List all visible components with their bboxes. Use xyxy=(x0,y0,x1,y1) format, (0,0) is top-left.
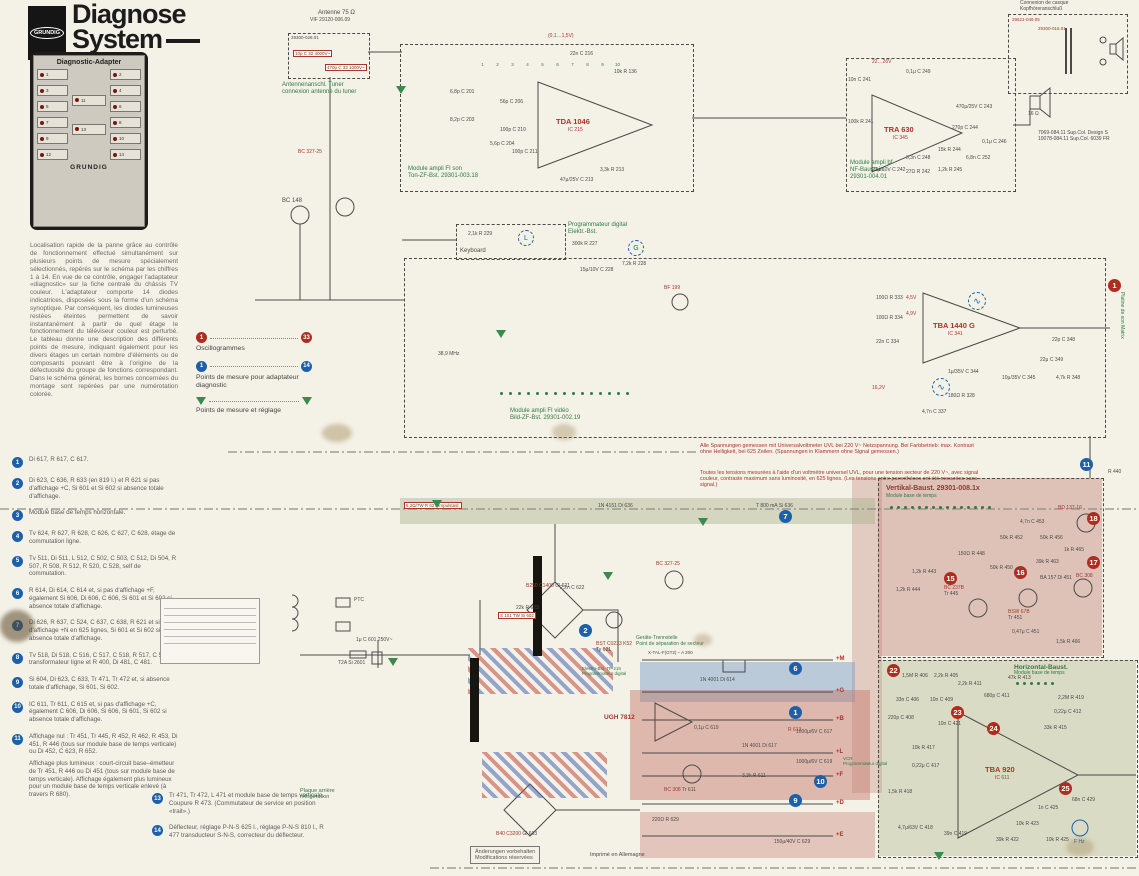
legend-osc-label: Oscillogrammes xyxy=(196,345,312,353)
part-label: 8,2p C 203 xyxy=(450,118,474,124)
part-label: 3,3k R 213 xyxy=(600,168,624,174)
adapter-point-marker: 6 xyxy=(789,662,802,675)
part-label: 4,7n C 337 xyxy=(922,410,946,416)
adapter-point-marker: 9 xyxy=(789,794,802,807)
voltage-label: 4,9V xyxy=(906,312,916,318)
adjust-point-marker xyxy=(698,518,708,526)
part-label: 1,5M R 406 xyxy=(902,674,928,680)
rail-label: +M xyxy=(836,656,845,663)
part-label: 1n C 425 xyxy=(1038,806,1058,812)
adapter-point-marker: 2 xyxy=(579,624,592,637)
headphone-caption: 7069-084.11 Sup.Col. Design S 10078-084.… xyxy=(1038,131,1110,143)
led-icon xyxy=(113,137,117,141)
part-label: 15k R 244 xyxy=(938,148,961,154)
osc-marker-sample: 1 xyxy=(196,332,207,343)
list-item: 9Si 604, Di 623, C 633, Tr 471, Tr 472 e… xyxy=(12,676,178,692)
part-label: 1k R 465 xyxy=(1064,548,1084,554)
part-label: 33n C 406 xyxy=(896,698,919,704)
adapter-led: 6 xyxy=(110,101,141,112)
adapter-marker-sample: 14 xyxy=(301,361,312,372)
adapter-led: 12 xyxy=(37,149,68,160)
ptc-label: PTC xyxy=(354,598,364,604)
adapter-point-marker: 7 xyxy=(779,510,792,523)
ic-tra630-ref: IC 345 xyxy=(893,136,908,142)
part-label: 15μ/10V C 228 xyxy=(580,268,613,274)
adapter-led: 2 xyxy=(110,69,141,80)
triangle-marker-sample xyxy=(196,397,206,405)
adapter-led: 10 xyxy=(110,133,141,144)
rail-label: +F xyxy=(836,772,843,779)
part-label: 50k R 452 xyxy=(1000,536,1023,542)
adapter-led: 13 xyxy=(72,124,106,135)
antenna-box: 29300-028.01 10p C 32 4000V~ 470p C 33 1… xyxy=(288,33,370,79)
adapter-led: 8 xyxy=(110,117,141,128)
led-icon xyxy=(40,89,44,93)
led-icon xyxy=(40,153,44,157)
part-label: 1μ/35V C 344 xyxy=(948,370,979,376)
part-label: 100p C 210 xyxy=(500,128,526,134)
rail-label: +L xyxy=(836,749,843,756)
cap-symbol xyxy=(372,652,382,664)
part-label: 100k R 241 xyxy=(848,120,874,126)
c629-label: 150μ/40V C 629 xyxy=(774,840,810,846)
list-item: 11 Affichage nul : Tr 451, Tr 445, R 452… xyxy=(12,733,178,799)
transistor-bf199-label: BF 199 xyxy=(664,286,680,292)
adapter-point-marker: 11 xyxy=(1080,458,1093,471)
test-point-row xyxy=(1016,682,1054,685)
part-label: 1,5k R 466 xyxy=(1056,640,1080,646)
part-label: 2,2k R 411 xyxy=(958,682,982,688)
part-label: 4,7μ/63V C 418 xyxy=(898,826,933,832)
adapter-led-column-right: 2 4 6 8 10 14 xyxy=(110,69,141,160)
relay-box xyxy=(723,660,745,672)
title-line2: System xyxy=(72,24,162,54)
part-label: 2,2M R 419 xyxy=(1058,696,1084,702)
elektro-bst-label: Elektro-Bst. TP 215 Programmateur digita… xyxy=(582,666,626,676)
speaker-16ohm xyxy=(1030,96,1040,109)
oscillogram-marker: 18 xyxy=(1087,512,1100,525)
part-label: 33k R 415 xyxy=(1044,726,1067,732)
c622-label: 2,2n C 622 xyxy=(560,586,584,592)
part-label: 7,2k R 228 xyxy=(622,262,646,268)
part-label: 0,22μ C 412 xyxy=(1054,710,1081,716)
part-label: 22n C 216 xyxy=(570,52,593,58)
part-label: 22μ C 349 xyxy=(1040,358,1063,364)
part-label: 47k R 413 xyxy=(1008,676,1031,682)
list-item: 1Di 617, R 617, C 617. xyxy=(12,456,178,468)
led-icon xyxy=(40,105,44,109)
part-label: 150Ω R 448 xyxy=(958,552,985,558)
adapter-marker-sample: 1 xyxy=(196,361,207,372)
osc-marker-sample: 33 xyxy=(301,332,312,343)
intro-paragraph: Localisation rapide de la panne grâce au… xyxy=(30,242,178,398)
ic-tra630-label: TRA 630 xyxy=(884,126,914,135)
oscillogram-marker: 15 xyxy=(944,572,957,585)
ic-tda1046-label: TDA 1046 xyxy=(556,118,590,127)
voltage-note-de: Alle Spannungen gemessen mit Universalvo… xyxy=(700,443,982,455)
headphone-ref: 29621-049.05 xyxy=(1012,17,1040,22)
test-point-row xyxy=(500,392,629,395)
transistor-bc327 xyxy=(665,571,683,589)
voltage-label: 22…26V xyxy=(872,60,891,66)
led-icon xyxy=(75,98,79,102)
triangle-marker-sample xyxy=(302,397,312,405)
part-label: 180Ω R 328 xyxy=(948,394,975,400)
part-label: 22p C 348 xyxy=(1052,338,1075,344)
led-icon xyxy=(40,121,44,125)
vertical-module-subtitle: Module base de temps xyxy=(886,494,937,500)
prog-digital-label: Programmateur digital Elektr.-Bst. xyxy=(568,222,627,236)
part-label: 2,1k R 229 xyxy=(468,232,492,238)
c601-label: 1μ C 601 250V~ xyxy=(356,638,392,644)
matrix-label: Platine de son Matrix xyxy=(1118,292,1124,339)
thyristor-label: BST C0233 K52Ty 621 xyxy=(596,642,632,654)
measure-point-list: 1Di 617, R 617, C 617. 2Di 623, C 636, R… xyxy=(12,456,178,808)
ptc-symbol xyxy=(336,598,350,607)
part-label: 10n C 421 xyxy=(938,722,961,728)
r623-label: 22k R 623 xyxy=(516,606,539,612)
adapter-point-marker: 10 xyxy=(814,775,827,788)
mains-fuse-label: T2A Si 2601 xyxy=(338,661,365,667)
di636-label: 1N 4151 Di 636 xyxy=(598,504,633,510)
part-label: 6,8p C 201 xyxy=(450,90,474,96)
antenna-caption: Antennenanschl. Tuner connexion antenne … xyxy=(282,82,356,96)
c617-label: 1000μ/6V C 617 xyxy=(796,730,832,736)
ic-tba920-label: TBA 920 xyxy=(985,766,1015,775)
fuse-s101-label: S 101 TW Si 602 xyxy=(498,612,536,619)
list-item: 2Di 623, C 636, R 633 (en 819 l.) et R 6… xyxy=(12,477,178,500)
adapter-point-marker: 1 xyxy=(789,706,802,719)
part-label: 10μ/35V C 345 xyxy=(1002,376,1035,382)
di614-label: 1N 4001 Di 614 xyxy=(700,678,735,684)
part-label: 3,3n C 248 xyxy=(906,156,930,162)
transistor-bc308-pwr-label: BC 308 Tr 611 xyxy=(664,788,696,794)
schematic-page: GRUNDIG Diagnose System Diagnostic-Adapt… xyxy=(0,0,1139,876)
part-label: 100Ω R 333 xyxy=(876,296,903,302)
degauss-coil xyxy=(292,595,298,631)
test-point-row xyxy=(890,506,991,509)
part-label: 1,2k R 443 xyxy=(912,570,936,576)
part-label: 47μ/25V C 213 xyxy=(560,178,593,184)
di617-label: 1N 4001 Di 617 xyxy=(742,744,777,750)
video-if-caption: Module ampli FI vidéo Bild-ZF-Bst. 29301… xyxy=(510,408,580,422)
adapter-led: 14 xyxy=(110,149,141,160)
part-label: 100Ω R 334 xyxy=(876,316,903,322)
adjust-point-marker xyxy=(388,658,398,666)
part-label: 27Ω R 242 xyxy=(906,170,930,176)
speaker-impedance: 16 Ω xyxy=(1028,112,1039,118)
part-label: 0,1μ C 249 xyxy=(906,70,931,76)
led-icon xyxy=(40,137,44,141)
r629-label: 220Ω R 629 xyxy=(652,818,679,824)
list-item: 7Di 626, R 637, C 524, C 637, C 638, R 6… xyxy=(12,619,178,642)
part-label: 10k R 136 xyxy=(614,70,637,76)
trimmer-fhz-label: F Hz xyxy=(1074,840,1085,846)
adapter-led: 11 xyxy=(72,95,106,106)
printed-note: Imprimé en Allemagne xyxy=(590,852,645,858)
voltage-label: 16,2V xyxy=(872,386,885,392)
legend: 1 33 Oscillogrammes 1 14 Points de mesur… xyxy=(196,332,312,423)
list-item: 8Tv 518, Di 518, C 516, C 517, C 518, R … xyxy=(12,652,178,668)
sound-if-caption: Module ampli FI son Ton-ZF-Bst. 29301-00… xyxy=(408,166,478,180)
part-label: 22μ/10V C 242 xyxy=(872,168,905,174)
antenna-box-ref: 29300-028.01 xyxy=(291,35,319,40)
headphone-trafo-ref: 29300-016.01 xyxy=(1038,26,1066,31)
ic-tda1046-ref: IC 215 xyxy=(568,128,583,134)
part-label: 1,2k R 245 xyxy=(938,168,962,174)
list-item: 14Déflecteur, réglage P-N-S 625 l., régl… xyxy=(152,824,328,840)
list-item: 4Tv 624, R 627, R 628, C 626, C 627, C 6… xyxy=(12,530,178,546)
title-dash xyxy=(166,39,200,43)
legend-adapter-label: Points de mesure pour adaptateur diagnos… xyxy=(196,374,312,390)
keyboard-label: Keyboard xyxy=(460,248,486,255)
heatsink-bar xyxy=(470,658,479,742)
part-label: 56p C 206 xyxy=(500,100,523,106)
oscillogram-marker: 23 xyxy=(951,706,964,719)
part-label: 10k R 425 xyxy=(1046,838,1069,844)
rail-label: +E xyxy=(836,832,844,839)
part-label: 100p C 211 xyxy=(512,150,537,156)
capacitor-c33: 470p C 33 1000V~ xyxy=(325,64,367,71)
part-label: 10k R 423 xyxy=(1016,822,1039,828)
changes-note: Änderungen vorbehalten Modifications rés… xyxy=(470,846,540,864)
bridge-gl603-label: B40 C3200 Gl 603 xyxy=(496,832,537,838)
thyristor-bst xyxy=(606,612,622,628)
part-label: 680p C 411 xyxy=(984,694,1009,700)
part-label: 4,7k R 348 xyxy=(1056,376,1080,382)
r611-label: 3,3k R 611 xyxy=(742,774,766,780)
part-label: 2,2k R 405 xyxy=(934,674,958,680)
part-label: 22n C 334 xyxy=(876,340,899,346)
test-point-row: 12345678910 xyxy=(478,62,622,67)
adapter-led: 1 xyxy=(37,69,68,80)
adapter-brand: GRUNDIG xyxy=(37,164,141,171)
transistor-bc148 xyxy=(291,206,309,224)
if-frequency-label: 38,9 MHz xyxy=(438,352,459,358)
ic-tba920-ref: IC 611 xyxy=(995,776,1009,782)
adjust-point-marker xyxy=(432,500,442,508)
part-label: 39n C 419 xyxy=(944,832,967,838)
transistor-bsw67b-label: BSW 67BTr 451 xyxy=(1008,610,1030,622)
oscillogram-marker: 17 xyxy=(1087,556,1100,569)
voltage-label: 4,5V xyxy=(906,296,916,302)
adapter-title: Diagnostic-Adapter xyxy=(37,59,141,66)
led-icon xyxy=(40,73,44,77)
adjust-point-marker xyxy=(603,572,613,580)
part-label: 68n C 429 xyxy=(1072,798,1095,804)
ptc-symbol xyxy=(336,622,350,631)
transistor-bc148-label: BC 148 xyxy=(282,198,302,205)
color-code-legend-box xyxy=(160,598,260,664)
led-icon xyxy=(113,121,117,125)
page-title: Diagnose System xyxy=(72,2,200,52)
transistor-bc327-pwr-label: BC 327-25 xyxy=(656,562,680,568)
list-item: 10IC 611, Tr 611, C 615 et, si pas d'aff… xyxy=(12,701,178,724)
vertical-module-title: Vertikal-Baust. 29301-008.1x xyxy=(886,485,980,493)
oscillogram-marker: 25 xyxy=(1059,782,1072,795)
part-label: 50k R 450 xyxy=(990,566,1013,572)
separation-label: Geräte-Trennstelle Point de séparation d… xyxy=(636,636,704,648)
led-icon xyxy=(113,73,117,77)
oscillogram-marker: 16 xyxy=(1014,566,1027,579)
isolation-hatch xyxy=(482,752,607,798)
c619b-label: 1000μ/6V C 619 xyxy=(796,760,832,766)
headphone-box xyxy=(1008,14,1128,94)
part-label: 50k R 456 xyxy=(1040,536,1063,542)
diagnostic-adapter-photo: Diagnostic-Adapter 1 3 5 7 9 12 11 13 2 … xyxy=(30,52,148,230)
regulator-label: UGH 7812 xyxy=(604,714,635,721)
backplate-label: Plaque arrière réfrigération xyxy=(300,788,335,801)
part-label: 0,1μ C 246 xyxy=(982,140,1007,146)
headphone-top-label: Connexion de casque Kopfhöreranschluß xyxy=(1020,1,1068,13)
oscillogram-marker: 24 xyxy=(987,722,1000,735)
part-label: 1,2k R 444 xyxy=(896,588,920,594)
adapter-led: 5 xyxy=(37,101,68,112)
led-icon xyxy=(75,127,79,131)
r440-label: R 440 xyxy=(1108,470,1121,476)
transistor-bc327-label: BC 327-25 xyxy=(298,150,322,156)
rail-label: +D xyxy=(836,800,844,807)
part-label: 6,8n C 252 xyxy=(966,156,990,162)
part-label: 39k R 463 xyxy=(1036,560,1059,566)
oscillogram-marker: 22 xyxy=(887,664,900,677)
adapter-led: 7 xyxy=(37,117,68,128)
adapter-led-column-center: 11 13 xyxy=(72,69,106,160)
voltage-label: (0,1…1,5V) xyxy=(548,34,574,40)
part-label: 10n C 241 xyxy=(848,78,871,84)
antenna-ref: VIF 29120-006.09 xyxy=(310,18,350,24)
si636-label: T 800 mA Si 636 xyxy=(756,504,793,510)
part-label: 270p C 244 xyxy=(952,126,978,132)
part-label: 10n C 409 xyxy=(930,698,953,704)
adapter-led: 9 xyxy=(37,133,68,144)
rail-label: +G xyxy=(836,688,844,695)
adapter-led: 3 xyxy=(37,85,68,96)
antenna-label: Antenne 75 Ω xyxy=(318,10,355,17)
part-label: 470μ/25V C 243 xyxy=(956,105,992,111)
adjust-point-marker xyxy=(496,330,506,338)
capacitor-c32: 10p C 32 4000V~ xyxy=(293,50,332,57)
transistor-bc308v-label: BC 308 xyxy=(1076,574,1093,580)
rail-label: +B xyxy=(836,716,844,723)
adjust-point-marker xyxy=(934,852,944,860)
led-icon xyxy=(113,105,117,109)
part-label: 300k R 227 xyxy=(572,242,598,248)
oscillogram-marker: 1 xyxy=(1108,279,1121,292)
part-label: BA 157 Di 451 xyxy=(1040,576,1072,582)
part-label: 5,6p C 204 xyxy=(490,142,514,148)
part-label: 1,5k R 418 xyxy=(888,790,912,796)
part-label: 39k R 422 xyxy=(996,838,1019,844)
adapter-led-column-left: 1 3 5 7 9 12 xyxy=(37,69,68,160)
grundig-logo-text: GRUNDIG xyxy=(30,27,64,39)
transistor-bc237b-label: BC 237BTr 445 xyxy=(944,586,964,598)
adapter-led: 4 xyxy=(110,85,141,96)
transistor-bd137-label: BD 137-16 xyxy=(1058,506,1082,512)
part-label: 220p C 408 xyxy=(888,716,914,722)
led-icon xyxy=(113,153,117,157)
part-label: 0,22μ C 417 xyxy=(912,764,939,770)
transistor-bc308-pwr xyxy=(683,765,701,783)
wire xyxy=(330,77,404,300)
ic-tba1440-ref: IC 341 xyxy=(948,332,963,338)
part-label: 10k R 417 xyxy=(912,746,935,752)
adjust-point-marker xyxy=(396,86,406,94)
transistor xyxy=(336,198,354,216)
xtal-label: X-TAL-F(GT2) – A 200 xyxy=(648,650,693,655)
legend-adjust-label: Points de mesure et réglage xyxy=(196,407,312,415)
ic-tba1440-label: TBA 1440 G xyxy=(933,322,975,331)
list-item: 5Tv 511, Di 511, L 512, C 502, C 503, C … xyxy=(12,555,178,578)
opamp-ugh7812 xyxy=(655,703,692,741)
c619-label: 0,1μ C 619 xyxy=(694,726,719,732)
vcr-label: VCR Programmateur digital xyxy=(843,756,887,766)
list-item: 3Module base de temps horizontale. xyxy=(12,509,178,521)
led-icon xyxy=(113,89,117,93)
part-label: 0,47μ C 451 xyxy=(1012,630,1039,636)
part-label: 4,7n C 453 xyxy=(1020,520,1044,526)
list-item: 6R 614, Di 614, C 614 et, si pas d'affic… xyxy=(12,587,178,610)
